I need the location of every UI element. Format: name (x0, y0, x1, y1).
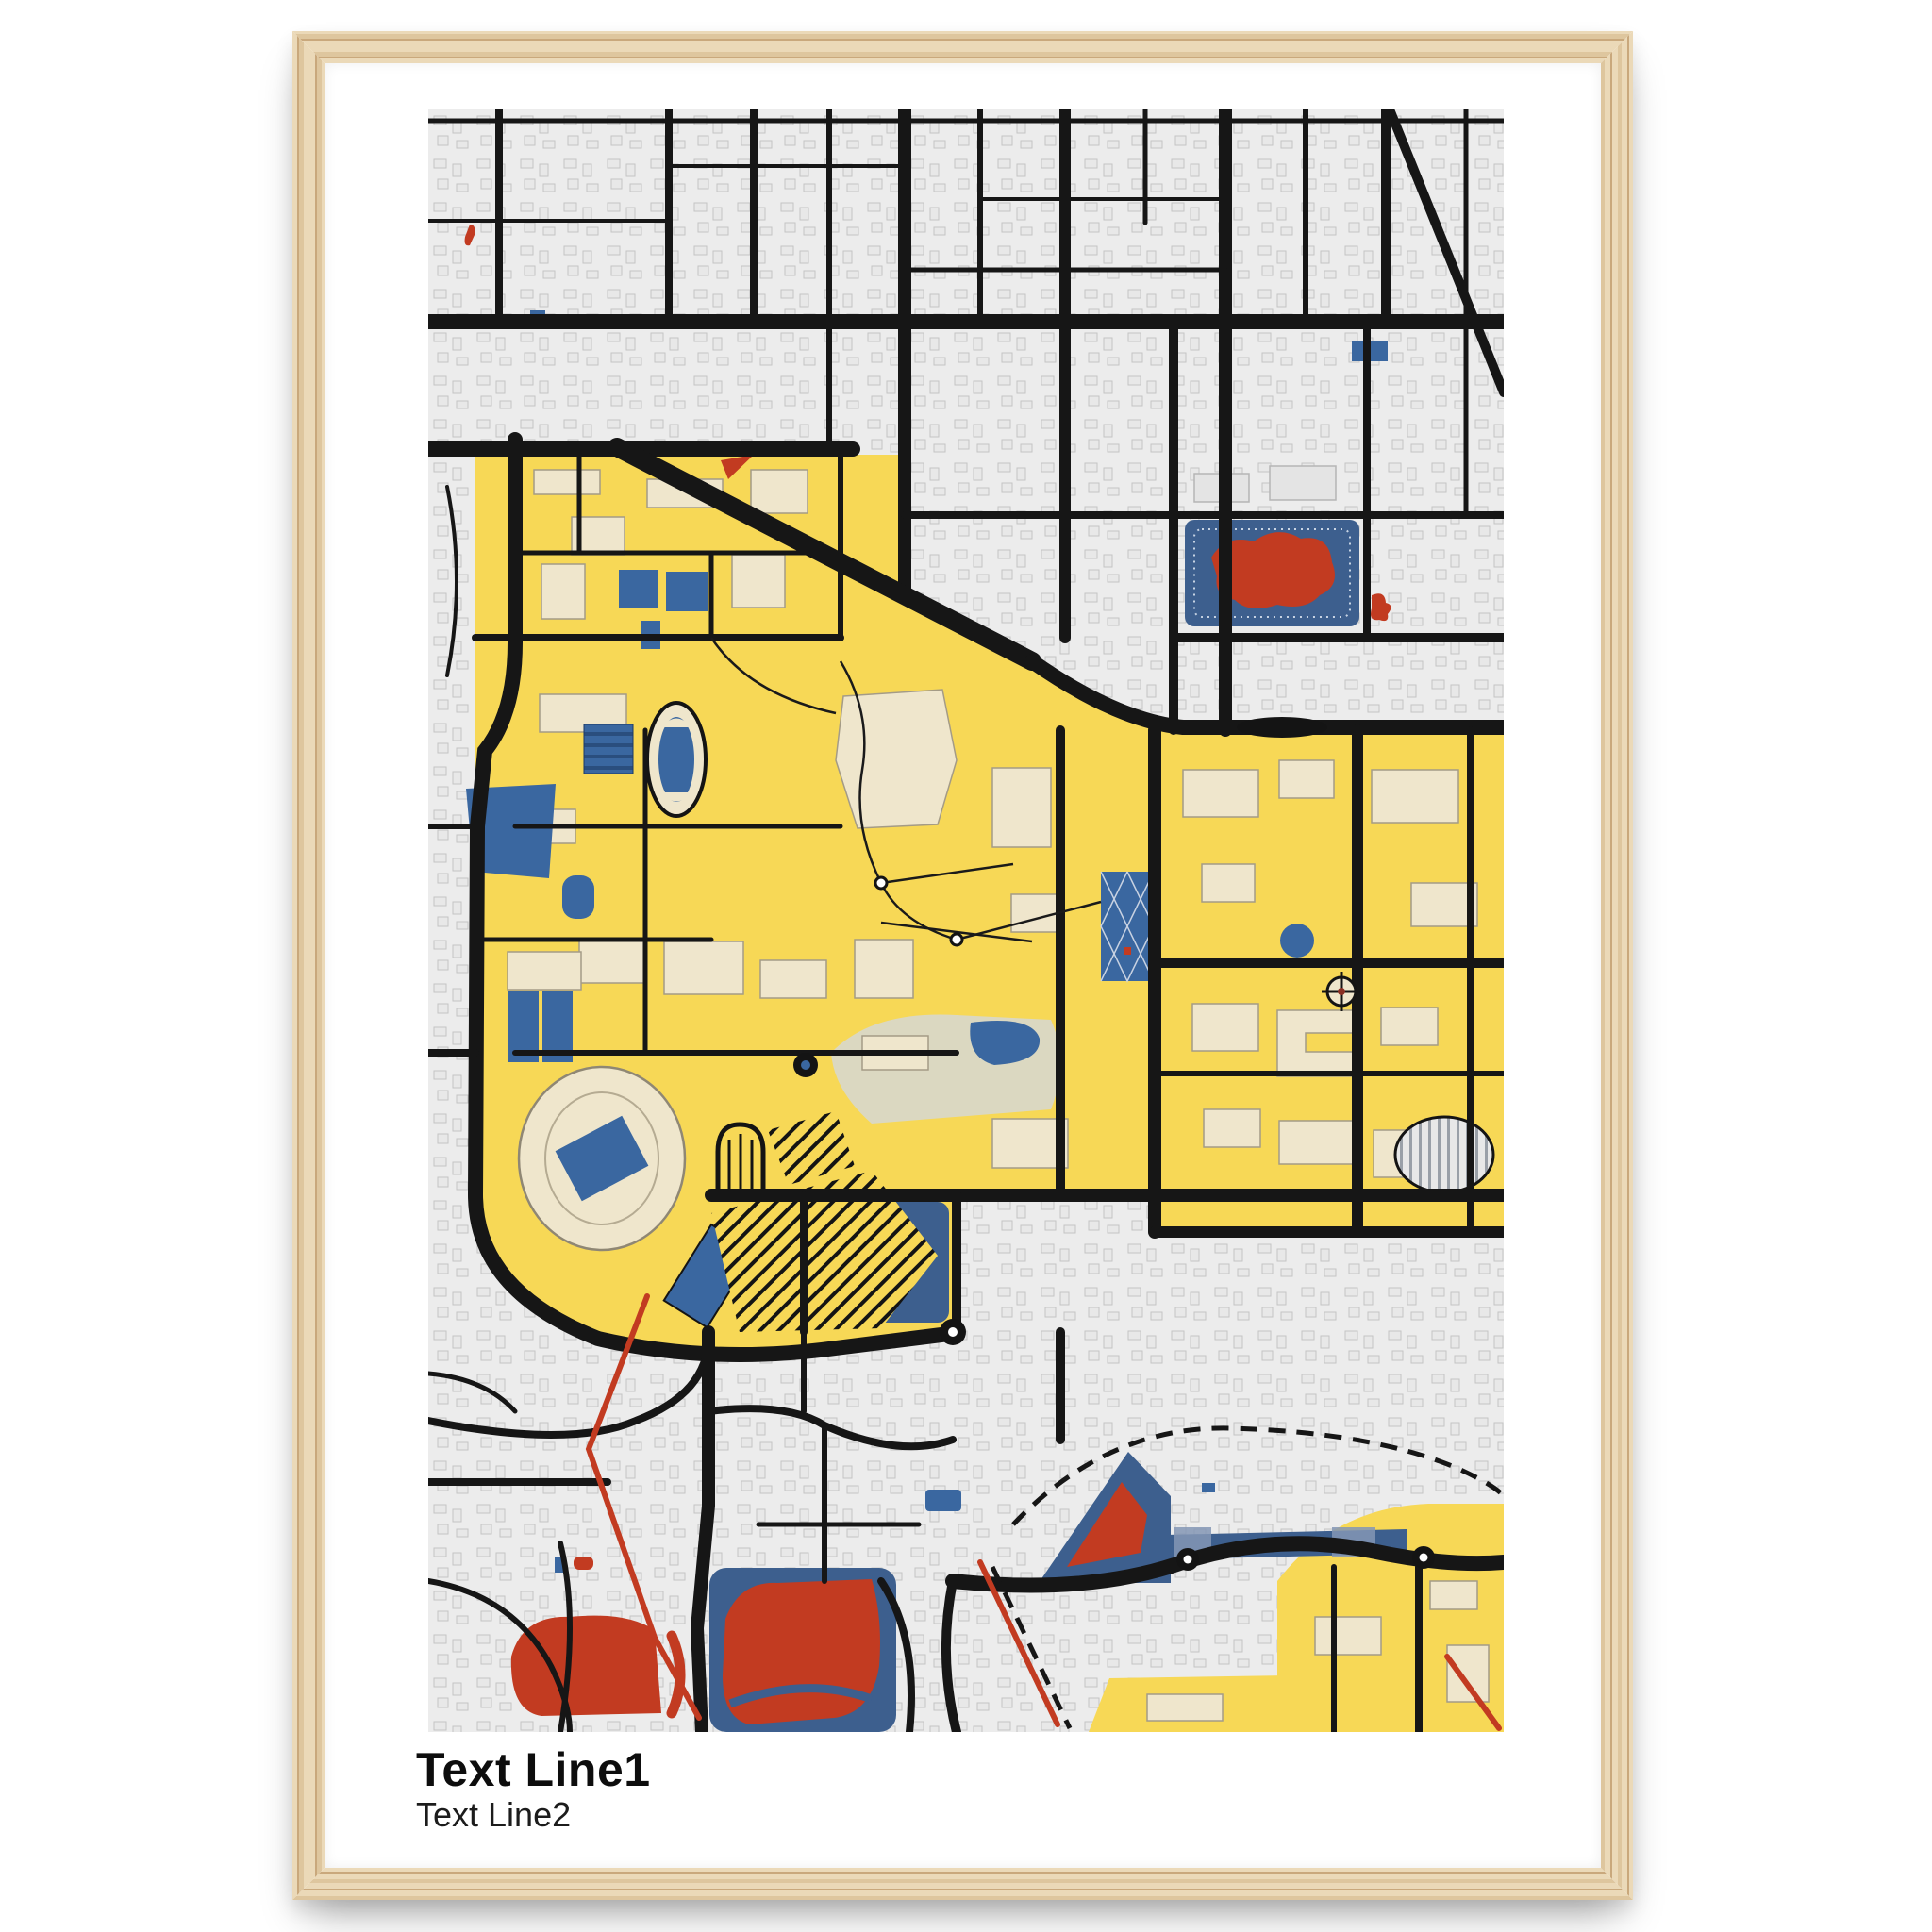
caption: Text Line1 Text Line2 (416, 1744, 651, 1834)
map-svg (428, 109, 1504, 1732)
poster-sheet: Text Line1 Text Line2 (325, 63, 1601, 1868)
running-track (647, 703, 706, 816)
wood-frame-left (292, 31, 325, 1900)
city-map-graphic (428, 109, 1504, 1732)
wood-frame-bottom (292, 1868, 1633, 1900)
wood-frame-right (1601, 31, 1633, 1900)
caption-line1: Text Line1 (416, 1744, 651, 1795)
stadium (519, 1067, 685, 1250)
wood-frame-top (292, 31, 1633, 63)
poster-mockup-scene: Text Line1 Text Line2 (0, 0, 1932, 1932)
caption-line2: Text Line2 (416, 1795, 651, 1834)
framed-poster: Text Line1 Text Line2 (292, 31, 1633, 1900)
